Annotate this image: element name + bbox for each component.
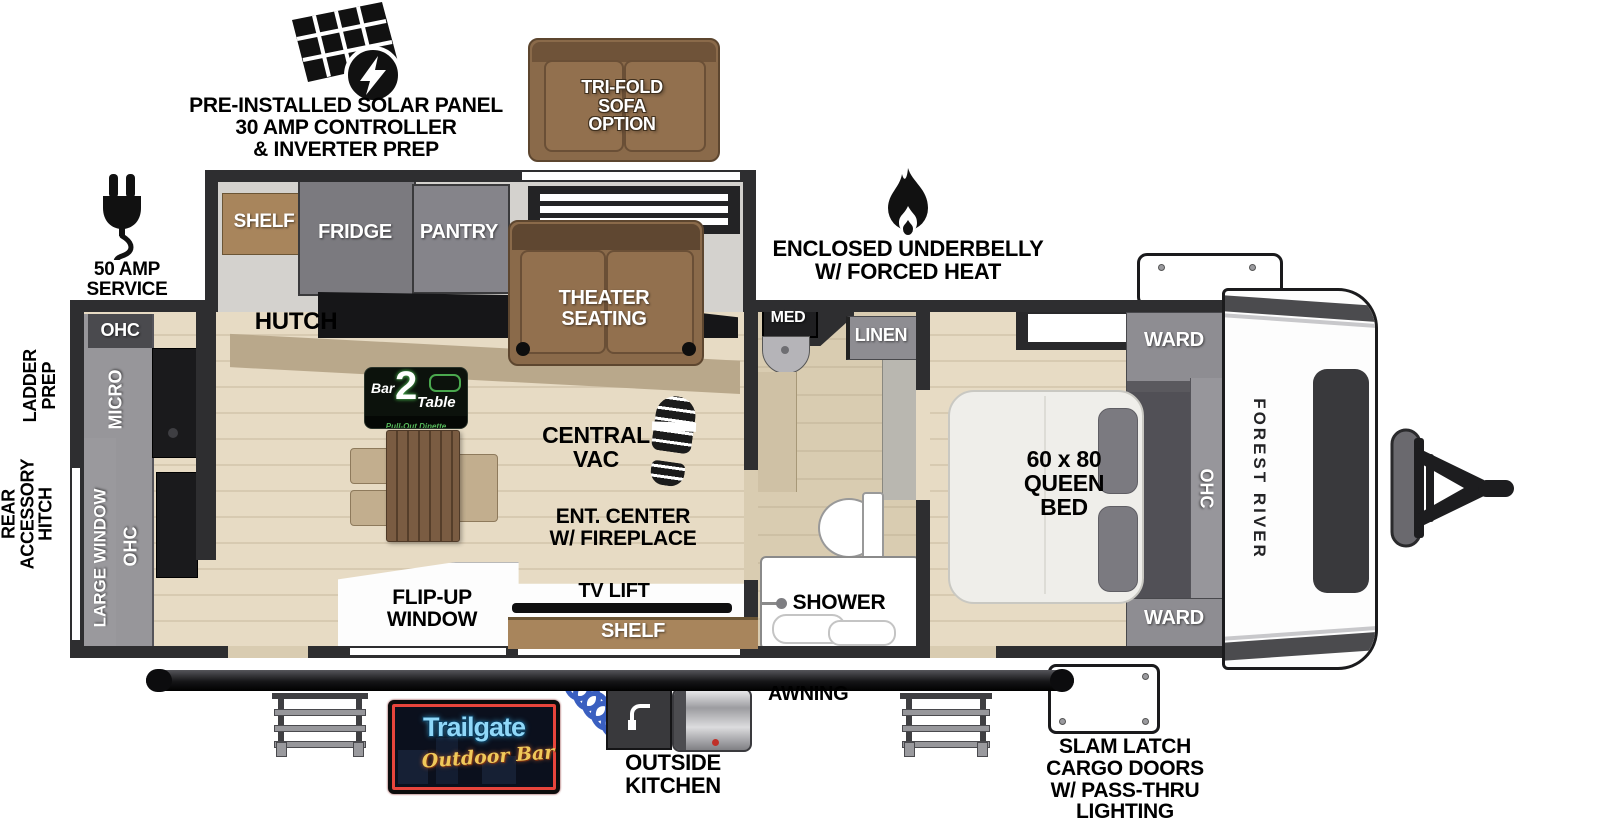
range-dot — [168, 428, 178, 438]
bath-cabinet-right — [882, 360, 917, 500]
ohc-side-label: OHC — [116, 510, 146, 582]
toilet-tank — [862, 492, 884, 562]
rear-appliance — [156, 472, 198, 578]
bedroom-door-opening — [930, 646, 996, 658]
bedroom-window-top — [1016, 306, 1140, 350]
tv-lift-label: TV LIFT — [558, 581, 670, 602]
entry-door-opening — [228, 646, 308, 658]
shelf-label: SHELF — [222, 212, 306, 232]
flame-icon — [884, 168, 932, 242]
med-label: MED — [762, 310, 814, 327]
power-plug-icon — [94, 174, 150, 260]
bar2table-two: 2 — [395, 367, 417, 409]
large-window-label: LARGE WINDOW — [84, 470, 116, 646]
hutch-label: HUTCH — [242, 310, 350, 335]
trifold-sofa-label: TRI-FOLD SOFA OPTION — [552, 78, 692, 134]
flip-up-window-label: FLIP-UP WINDOW — [364, 587, 500, 631]
linen-label: LINEN — [848, 326, 914, 345]
underbelly-callout: ENCLOSED UNDERBELLY W/ FORCED HEAT — [758, 238, 1058, 284]
awning-bar — [146, 670, 1074, 691]
range-cooktop — [152, 348, 198, 458]
fridge-label: FRIDGE — [298, 222, 412, 243]
bar2table-pictogram-icon — [429, 374, 461, 392]
cap-window — [1313, 369, 1369, 593]
top-wall-rear-segment — [70, 300, 218, 312]
galley-wall-right — [743, 170, 756, 312]
front-cap: FOREST RIVER — [1222, 288, 1378, 670]
ohc-top-label: OHC — [88, 321, 152, 340]
trailgate-name: Trailgate — [392, 712, 556, 743]
bedroom-doorway-opening — [916, 390, 930, 500]
ladder-prep-label: LADDER PREP — [14, 334, 66, 438]
bar2table-bar: Bar — [371, 380, 394, 396]
shower-label: SHOWER — [772, 592, 906, 614]
dinette-chair-left-top — [350, 448, 390, 484]
top-wall-front-segment — [743, 300, 1222, 312]
flip-window-slit — [350, 648, 506, 655]
entry-steps-main — [272, 693, 368, 757]
bar2table-table: Table — [417, 394, 456, 411]
amp-service-label: 50 AMP SERVICE — [52, 260, 202, 300]
bedroom-ohc-label: OHC — [1190, 446, 1222, 530]
dinette-chair-right — [456, 454, 498, 522]
theater-seating-label: THEATER SEATING — [534, 288, 674, 330]
awning-label: AWNING — [768, 684, 864, 705]
shelf-front-label: SHELF — [508, 621, 758, 642]
central-vac-label: CENTRAL VAC — [536, 424, 656, 472]
pantry-label: PANTRY — [412, 222, 506, 243]
rear-window-slit — [72, 468, 80, 640]
solar-panel-icon — [280, 0, 406, 106]
bar2table-tagline: Pull-Out Dinette — [386, 422, 446, 429]
tv-lift-bar — [512, 603, 732, 613]
outside-kitchen-griddle — [672, 688, 752, 752]
bath-door-opening — [744, 470, 758, 580]
micro-label: MICRO — [100, 356, 132, 442]
forest-river-label: FOREST RIVER — [1241, 353, 1277, 605]
galley-divider-wall — [196, 312, 216, 560]
bath-sink-drain — [781, 346, 789, 354]
galley-window-top — [522, 172, 740, 180]
shelf-window-slit — [518, 648, 740, 655]
ward-top-label: WARD — [1126, 330, 1222, 351]
ward-bottom-label: WARD — [1126, 608, 1222, 629]
galley-wall-left — [205, 170, 218, 312]
ent-center-label: ENT. CENTER W/ FIREPLACE — [544, 506, 702, 550]
dinette-chair-left-bottom — [350, 490, 390, 526]
bath-vanity — [758, 372, 797, 492]
dinette-table — [386, 430, 460, 542]
outside-kitchen-sink — [606, 684, 672, 750]
solar-callout: PRE-INSTALLED SOLAR PANEL 30 AMP CONTROL… — [186, 95, 506, 160]
floorplan-canvas: PRE-INSTALLED SOLAR PANEL 30 AMP CONTROL… — [0, 0, 1600, 831]
bar2table-logo: Bar 2 Table Pull-Out Dinette — [364, 367, 468, 429]
outside-kitchen-label: OUTSIDE KITCHEN — [598, 752, 748, 798]
rear-accessory-hitch-label: REAR ACCESSORY HITCH — [0, 452, 58, 576]
queen-bed-label: 60 x 80 QUEEN BED — [1002, 448, 1126, 520]
entry-steps-bedroom — [900, 693, 992, 757]
trailgate-logo: Trailgate Outdoor Bar — [388, 700, 560, 794]
slam-latch-callout: SLAM LATCH CARGO DOORS W/ PASS-THRU LIGH… — [1036, 736, 1214, 823]
